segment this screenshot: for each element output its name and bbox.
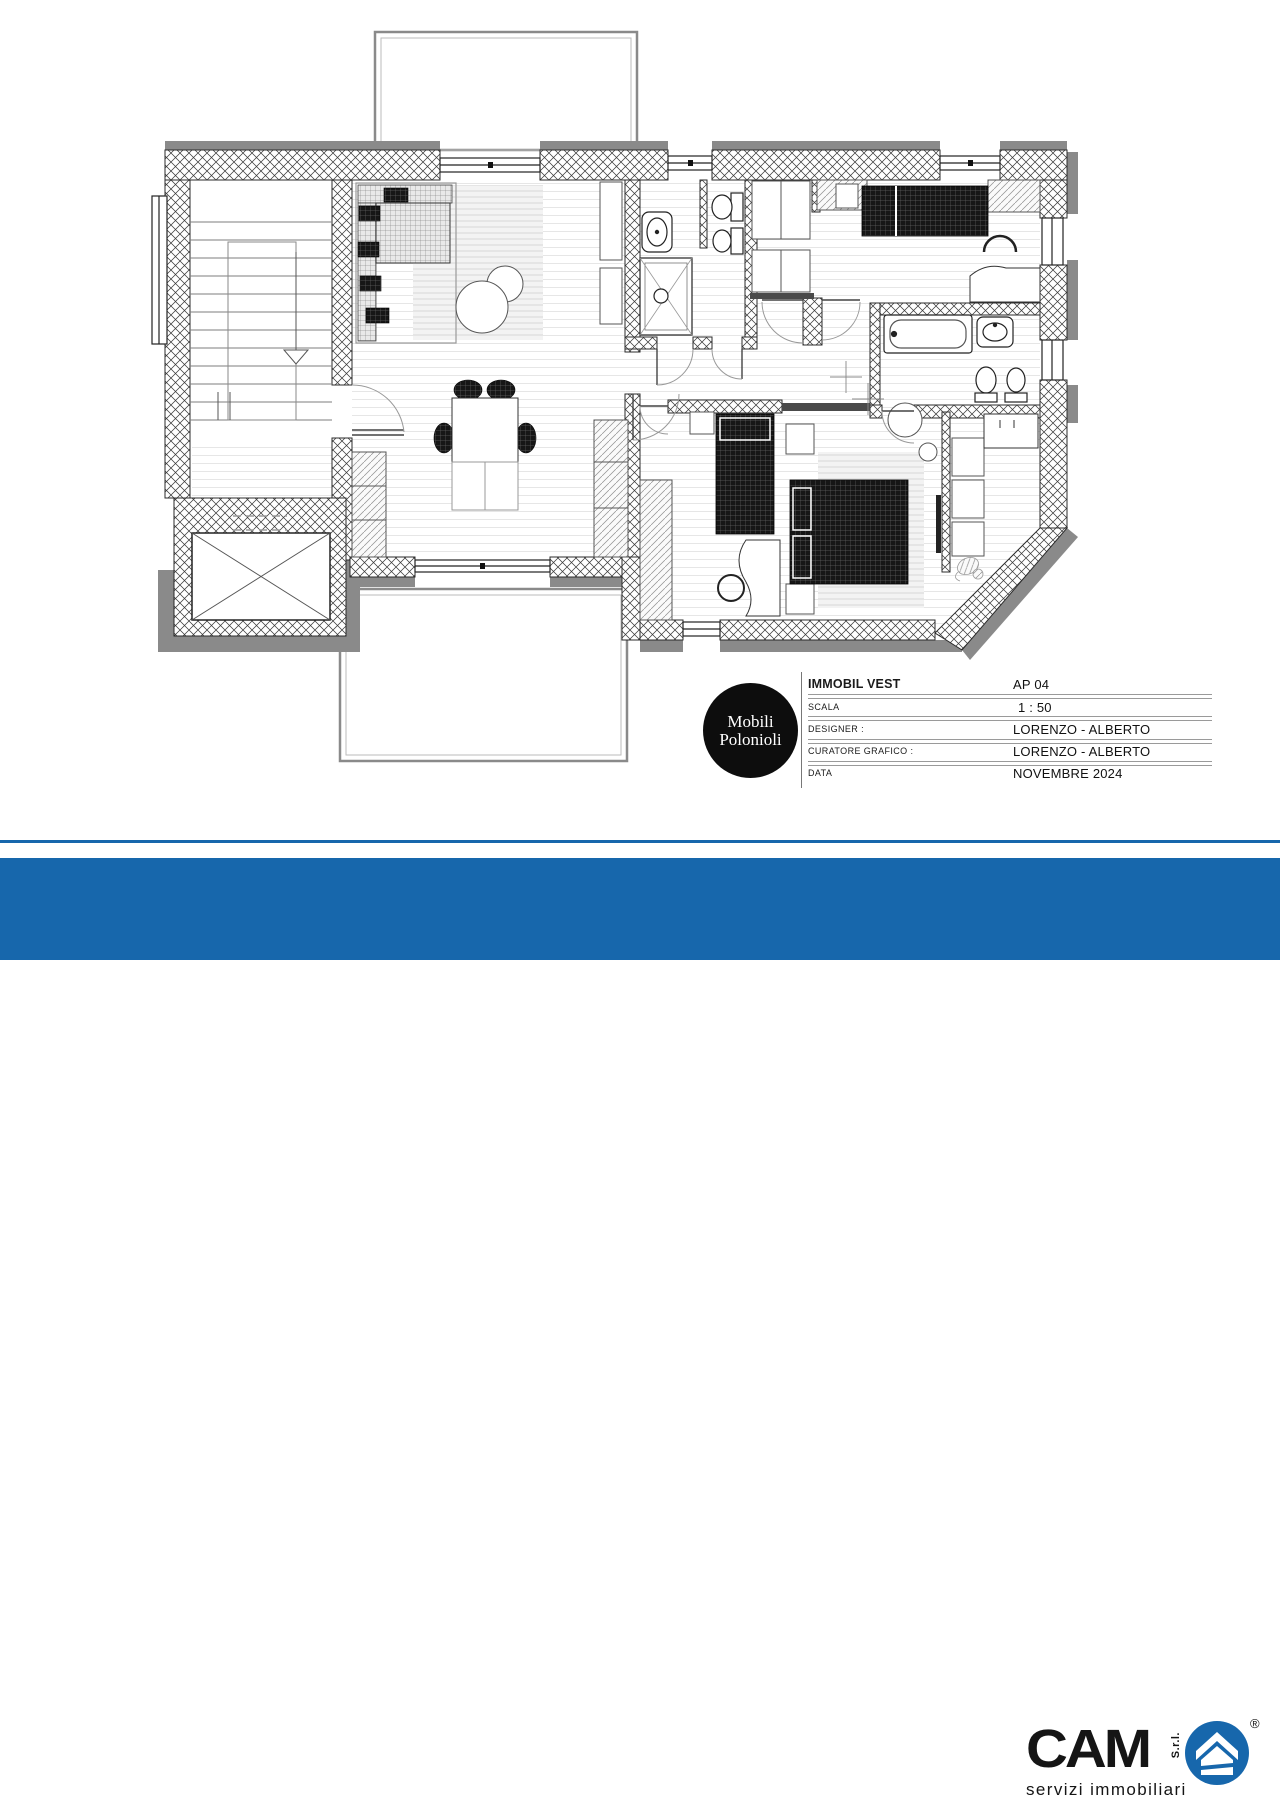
wall-thin-closet <box>750 293 814 299</box>
tb-label-immobil: IMMOBIL VEST <box>808 677 900 691</box>
dresser <box>984 414 1038 448</box>
tb-value-ap: AP 04 <box>1013 677 1049 692</box>
title-block-divider <box>801 672 802 788</box>
nightstand <box>690 412 714 434</box>
tb-label-designer: DESIGNER : <box>808 724 864 734</box>
mobili-polonioli-logo: Mobili Polonioli <box>703 683 798 778</box>
tb-label-data: DATA <box>808 768 832 778</box>
staircase <box>190 222 332 420</box>
pillow <box>793 536 811 578</box>
dining-table <box>452 398 518 462</box>
footer-bar: APPARTAMENTO QUADRILOCALE PISOGNE CAM S.… <box>0 858 1280 960</box>
tb-separator <box>808 716 1212 721</box>
nightstand <box>836 184 858 208</box>
tb-label-curatore: CURATORE GRAFICO : <box>808 746 913 756</box>
bidet <box>1007 368 1025 392</box>
cam-wordmark: CAM <box>1026 1718 1149 1780</box>
plant <box>919 443 937 461</box>
wardrobe-hatched <box>988 180 1040 212</box>
tb-separator <box>808 694 1212 699</box>
wall-thin-bedroom <box>782 403 870 411</box>
footer-title: APPARTAMENTO QUADRILOCALE PISOGNE <box>57 1730 429 1794</box>
tv-panel <box>936 495 941 553</box>
toilet <box>976 367 996 393</box>
tb-label-scala: SCALA <box>808 702 840 712</box>
tb-separator <box>808 739 1212 744</box>
sideboard <box>600 182 622 260</box>
nightstand <box>786 424 814 454</box>
toilet <box>731 193 743 221</box>
plant <box>888 403 922 437</box>
wardrobe-units <box>952 438 984 556</box>
sideboard <box>600 268 622 324</box>
sofa-chaise <box>376 203 450 263</box>
tb-value-data: NOVEMBRE 2024 <box>1013 766 1123 781</box>
tb-separator <box>808 761 1212 766</box>
footer-title-line2: PISOGNE <box>57 1762 429 1794</box>
balcony-bottom <box>340 589 627 761</box>
coffee-table <box>456 281 508 333</box>
tb-value-curatore: LORENZO - ALBERTO <box>1013 744 1150 759</box>
cam-house-icon <box>1184 1720 1250 1786</box>
cam-srl-label: S.r.l. <box>1170 1732 1182 1758</box>
wardrobe-hatched <box>640 480 672 620</box>
pillow <box>793 488 811 530</box>
footer-accent-line <box>0 840 1280 843</box>
pillow <box>720 418 770 440</box>
balcony-top <box>375 32 637 150</box>
cam-logo-panel: CAM S.r.l. ® servizi immobiliari <box>1000 1716 1280 1818</box>
nightstand <box>786 584 814 614</box>
single-bed <box>862 186 988 236</box>
cam-tagline: servizi immobiliari <box>1026 1780 1187 1800</box>
tb-value-designer: LORENZO - ALBERTO <box>1013 722 1150 737</box>
bidet <box>731 228 743 254</box>
registered-mark: ® <box>1250 1716 1260 1731</box>
logo-line2: Polonioli <box>719 731 781 749</box>
logo-line1: Mobili <box>727 713 773 731</box>
footer-title-line1: APPARTAMENTO QUADRILOCALE <box>57 1730 429 1762</box>
desk <box>970 266 1040 302</box>
tb-value-scala: 1 : 50 <box>1018 700 1052 715</box>
